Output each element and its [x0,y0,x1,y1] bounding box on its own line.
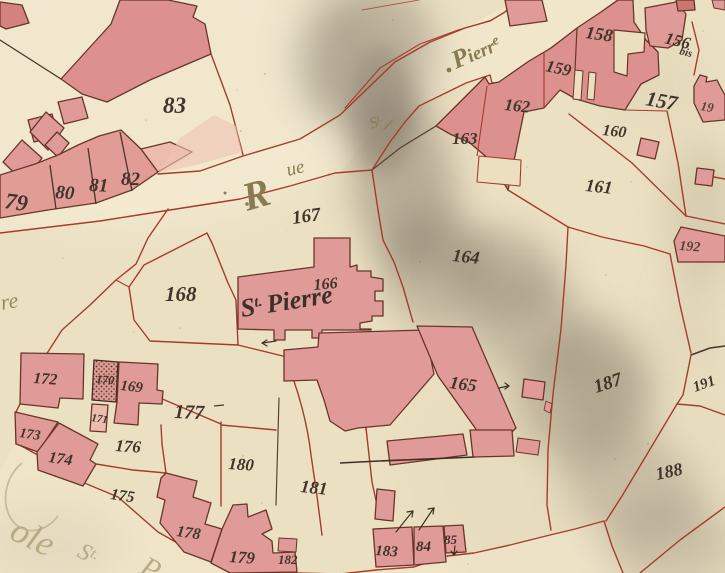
svg-text:171: 171 [91,412,109,426]
svg-text:158: 158 [584,22,614,46]
svg-text:79: 79 [3,188,30,216]
svg-text:83: 83 [163,93,186,118]
svg-text:170: 170 [96,372,115,387]
svg-text:173: 173 [18,426,41,444]
svg-text:84: 84 [416,539,432,555]
svg-text:82: 82 [121,169,141,190]
svg-text:192: 192 [679,239,701,255]
svg-text:182: 182 [278,552,298,567]
svg-text:179: 179 [229,547,256,568]
svg-text:160: 160 [602,122,628,141]
svg-text:167: 167 [291,204,324,229]
svg-text:172: 172 [33,370,58,389]
svg-text:174: 174 [47,449,73,469]
svg-text:161: 161 [585,175,614,198]
svg-text:164: 164 [452,245,481,268]
svg-text:183: 183 [375,543,399,561]
svg-text:162: 162 [504,95,532,117]
svg-text:175: 175 [109,486,135,506]
svg-text:168: 168 [165,282,197,306]
svg-text:163: 163 [452,129,478,148]
svg-text:181: 181 [300,476,329,499]
svg-text:165: 165 [448,372,478,396]
svg-text:180: 180 [228,454,255,475]
svg-text:176: 176 [115,436,142,457]
svg-text:178: 178 [175,523,201,543]
svg-text:177: 177 [174,401,206,424]
svg-text:81: 81 [89,175,109,197]
svg-text:85: 85 [444,532,458,547]
svg-text:80: 80 [55,182,76,204]
svg-text:169: 169 [120,378,145,396]
